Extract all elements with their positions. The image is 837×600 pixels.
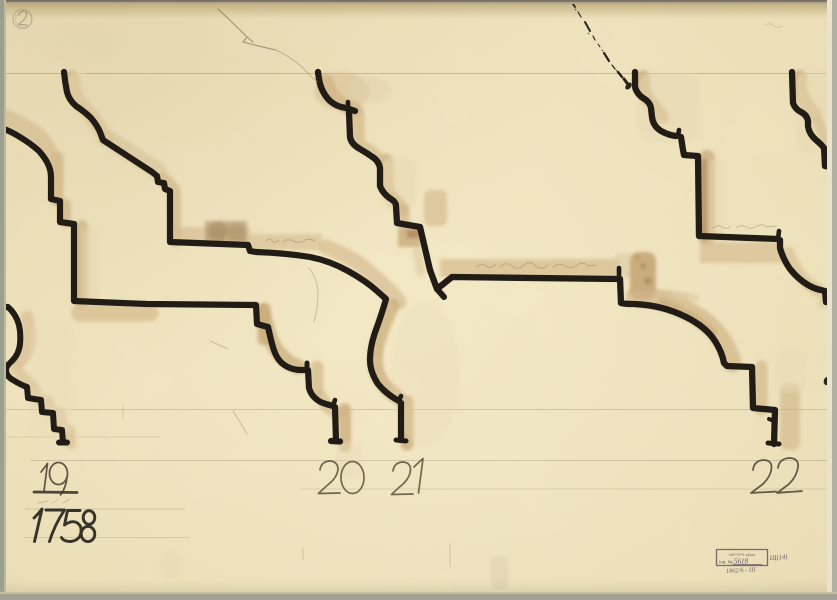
svg-text:МКРЗРФ зфіва: МКРЗРФ зфіва: [729, 553, 756, 557]
svg-text:Щ(14): Щ(14): [769, 554, 788, 562]
svg-text:Інв. №: Інв. №: [719, 560, 733, 565]
